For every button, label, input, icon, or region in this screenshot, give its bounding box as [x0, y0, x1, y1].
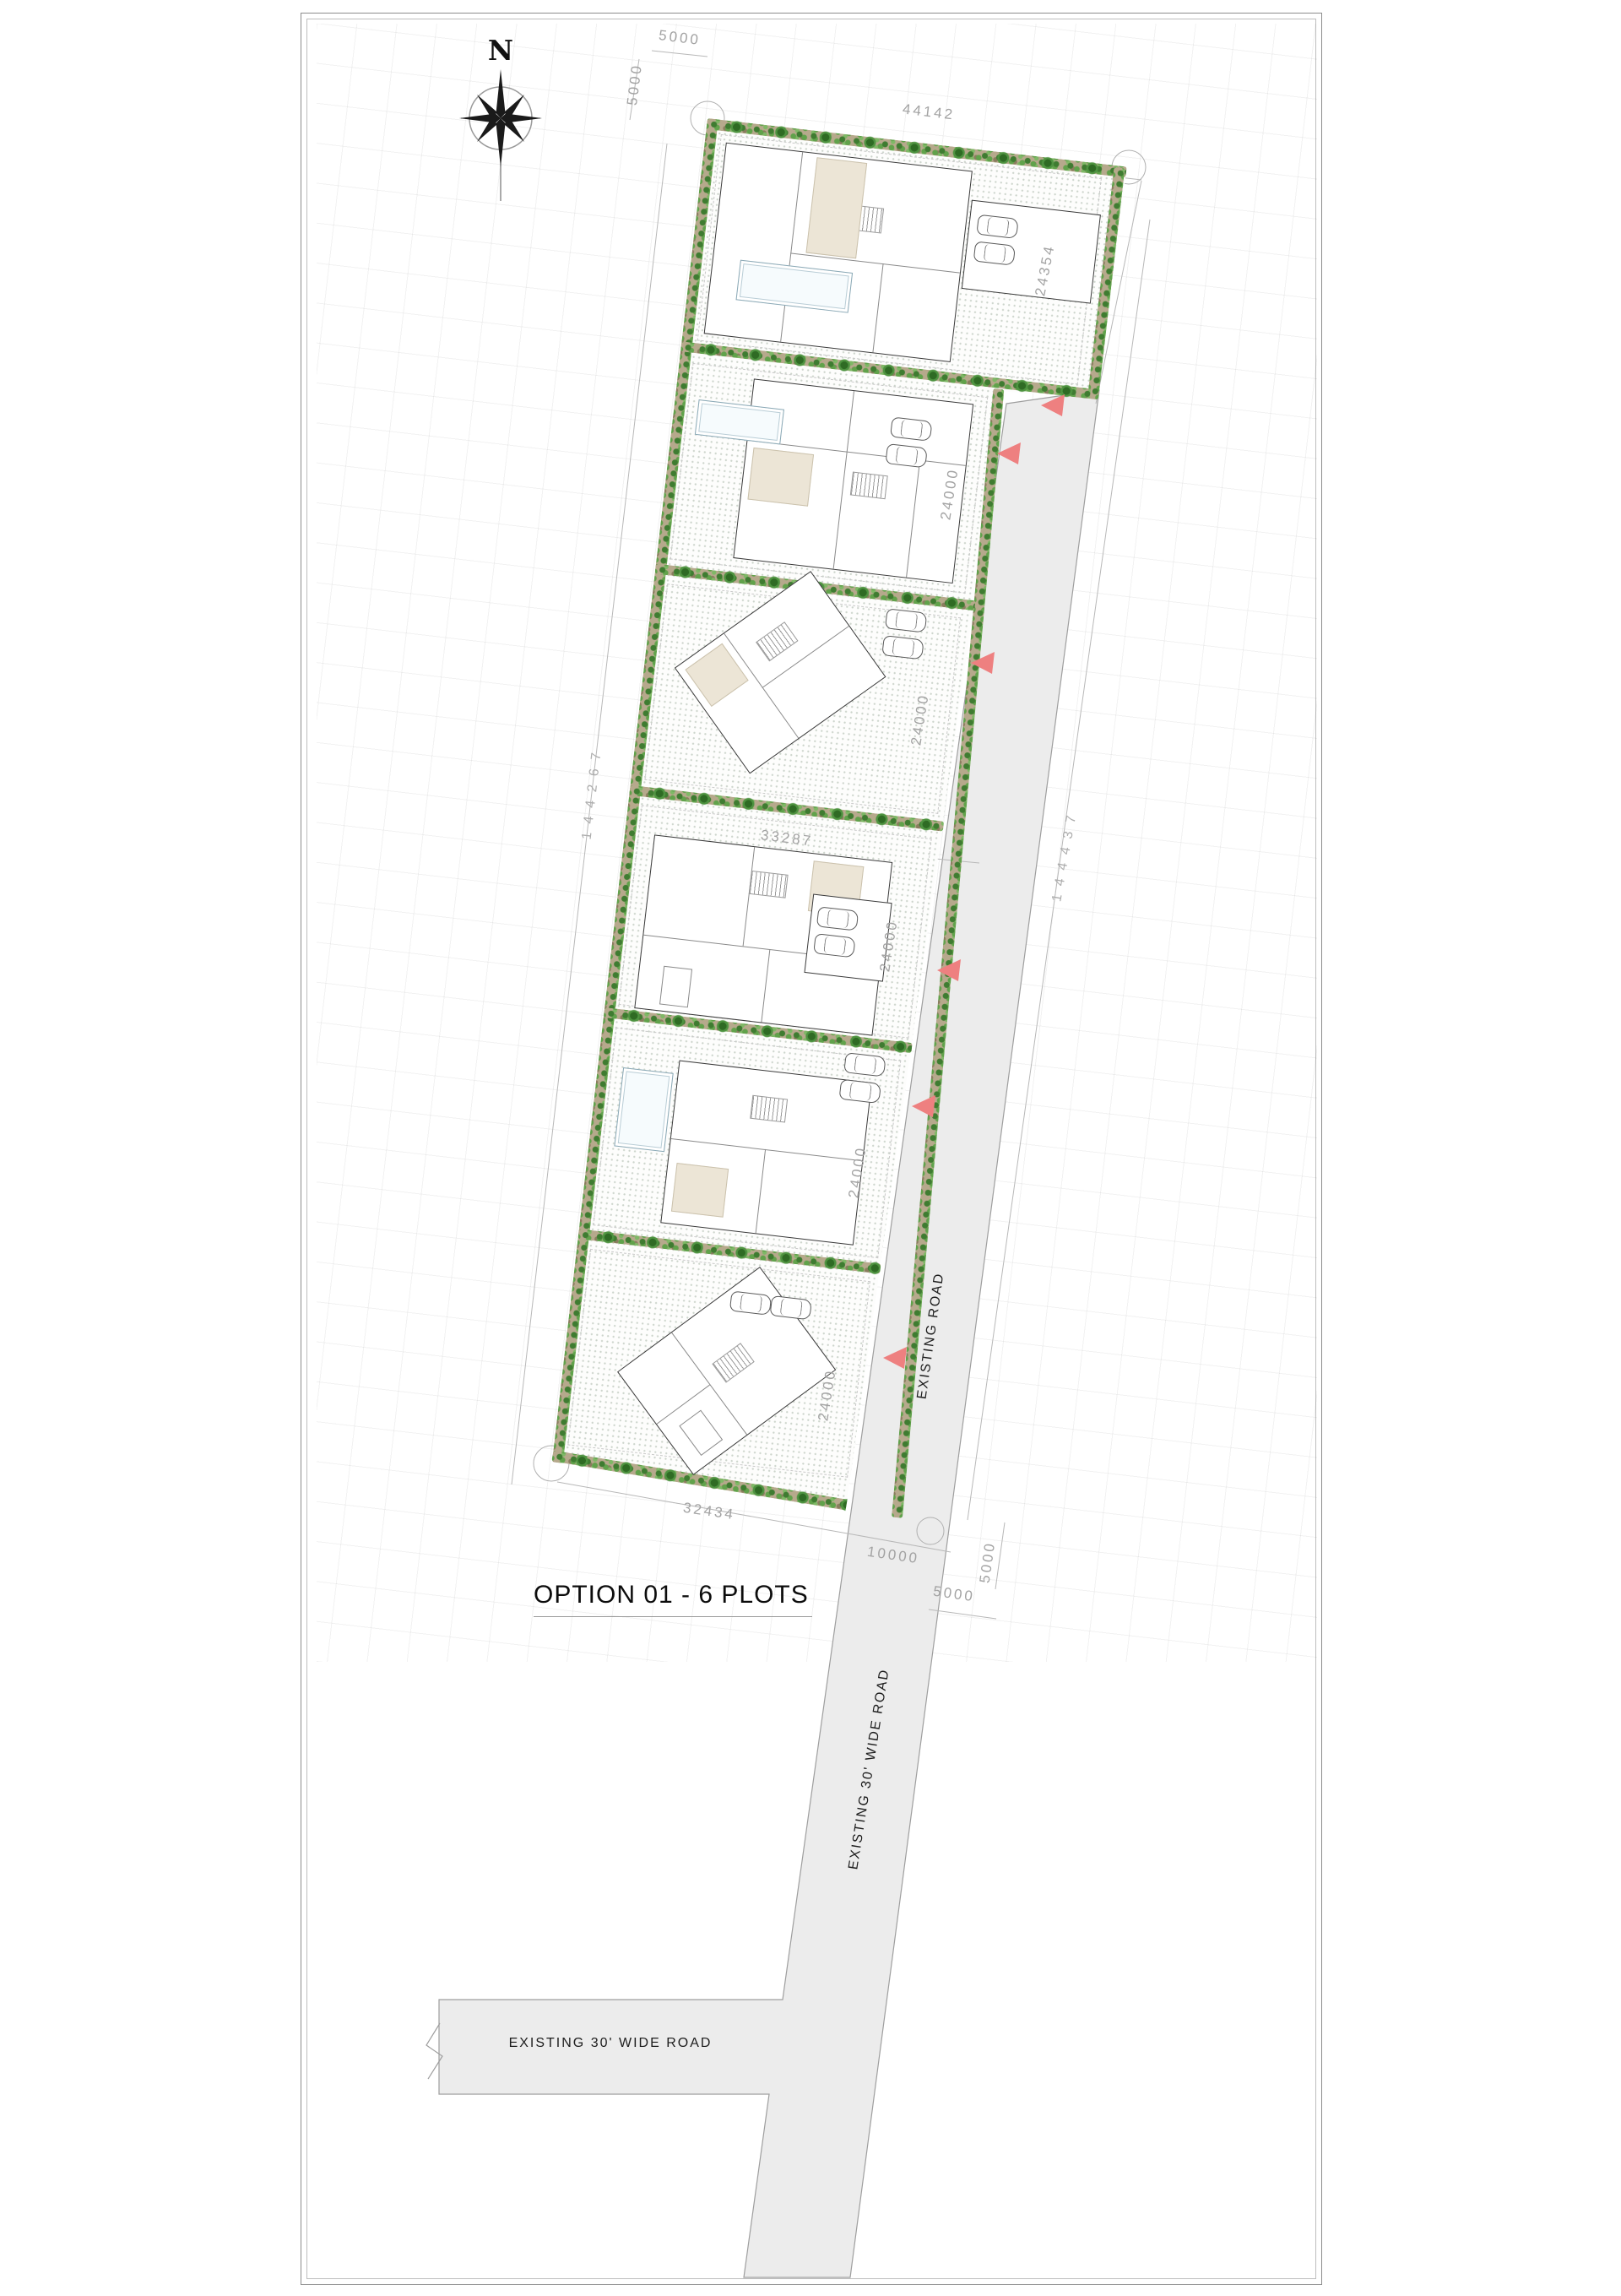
compass-north-label: N — [481, 34, 520, 67]
existing-30-wide-road-horizontal-label: EXISTING 30' WIDE ROAD — [509, 2036, 713, 2051]
drawing-sheet: N 5000 5000 44142 24354 144267 144437 33… — [0, 0, 1621, 2296]
plot5-pool — [614, 1067, 673, 1152]
drawing-title: OPTION 01 - 6 PLOTS — [534, 1581, 812, 1617]
plot1-house — [704, 143, 973, 362]
